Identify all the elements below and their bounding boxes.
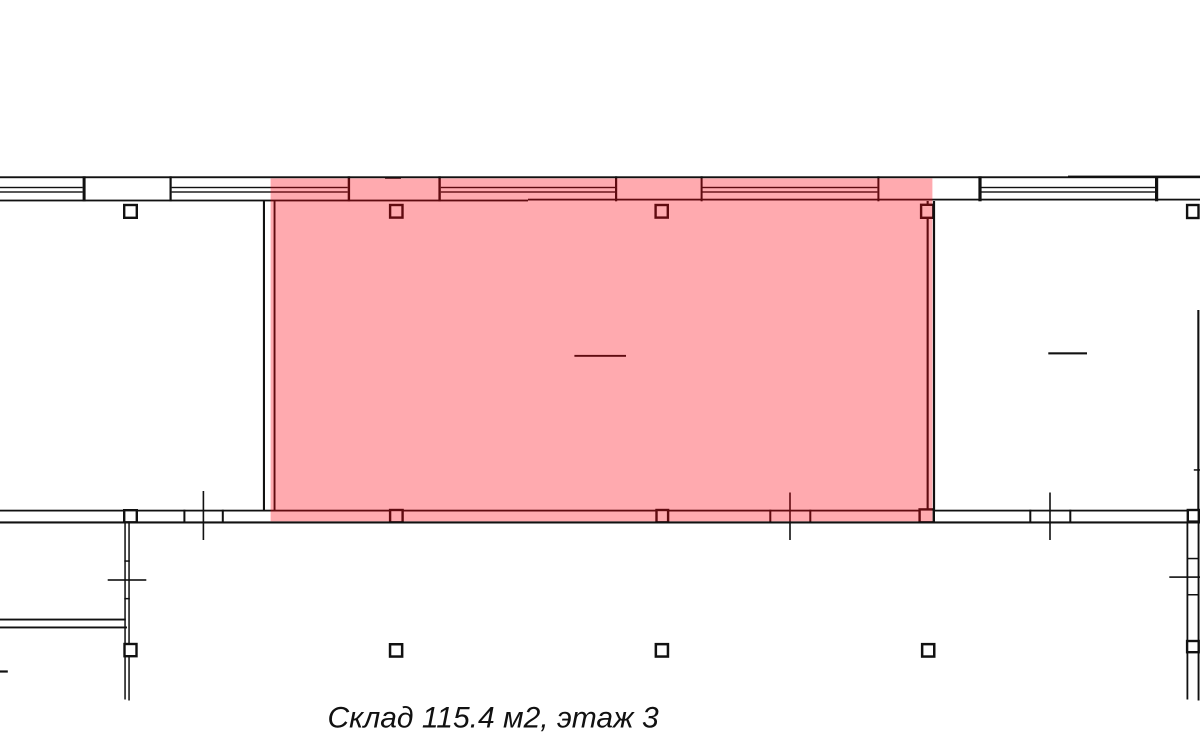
svg-text:Склад 115.4 м2, этаж 3: Склад 115.4 м2, этаж 3 — [328, 702, 660, 735]
